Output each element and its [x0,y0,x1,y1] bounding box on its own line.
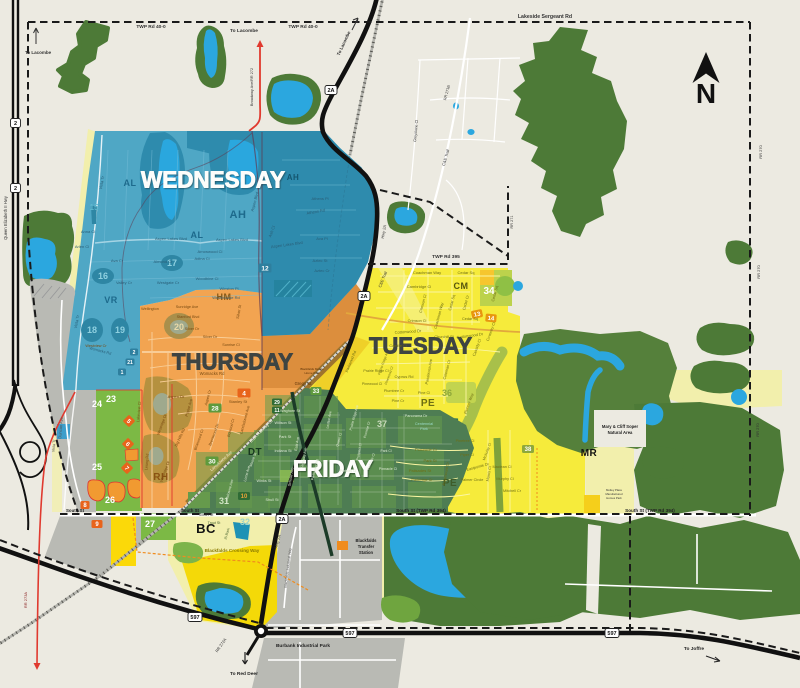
svg-text:Valley Cr: Valley Cr [116,280,133,285]
svg-text:RR 271: RR 271 [510,216,514,229]
svg-text:2: 2 [14,121,17,127]
svg-text:16: 16 [98,271,108,281]
svg-text:23: 23 [106,394,116,404]
svg-text:Portway Cl: Portway Cl [340,469,357,473]
svg-text:Trout St: Trout St [208,521,221,525]
svg-text:Westgate Cr: Westgate Cr [157,280,180,285]
svg-text:10: 10 [241,494,248,500]
svg-text:1: 1 [121,370,124,376]
svg-text:Sunrise Cl: Sunrise Cl [222,343,240,347]
svg-text:Waghorn St: Waghorn St [280,409,301,413]
svg-text:Athens Pl: Athens Pl [311,196,328,201]
svg-text:Ava Cr: Ava Cr [111,258,124,263]
svg-text:AL: AL [191,230,204,240]
svg-text:Arlen Cl: Arlen Cl [75,244,89,249]
svg-text:To Red Deer: To Red Deer [230,671,258,677]
svg-text:Mary & Cliff Soper: Mary & Cliff Soper [602,424,639,429]
svg-text:To Joffre: To Joffre [684,646,704,652]
svg-text:Aspen Lakes Blvd: Aspen Lakes Blvd [216,237,248,242]
svg-text:Blackfalds: Blackfalds [356,538,378,543]
svg-text:Shull St: Shull St [265,498,279,502]
svg-text:32: 32 [240,517,250,527]
svg-text:Pinetree Cl: Pinetree Cl [456,439,475,443]
svg-text:Winston Pl: Winston Pl [219,286,238,291]
svg-text:15: 15 [90,203,99,212]
svg-text:Wellington: Wellington [141,307,159,311]
svg-text:Aztec St: Aztec St [313,258,329,263]
svg-text:Piper Cl: Piper Cl [460,453,474,457]
svg-text:2A: 2A [278,517,285,523]
svg-text:Womacks Rd: Womacks Rd [200,371,225,376]
svg-text:Home Park: Home Park [304,371,320,375]
svg-text:Maclean Cl: Maclean Cl [493,465,512,469]
svg-text:Woodbine Cl: Woodbine Cl [196,276,219,281]
svg-text:Gregg St: Gregg St [295,381,313,386]
svg-text:24: 24 [92,399,102,409]
svg-text:12: 12 [261,265,269,272]
svg-text:VR: VR [104,295,118,305]
svg-text:To Lacombe: To Lacombe [230,28,258,34]
svg-text:Broadway Ave/RR 272: Broadway Ave/RR 272 [250,68,254,106]
svg-text:Coachman Way: Coachman Way [413,270,441,275]
svg-text:Mitchell Cr: Mitchell Cr [503,489,522,493]
svg-text:South St: South St [181,508,200,513]
svg-text:THURSDAY: THURSDAY [172,349,293,375]
svg-text:Pinnacle Cl: Pinnacle Cl [379,467,397,471]
svg-text:33: 33 [313,389,320,395]
svg-text:Park St: Park St [423,458,437,463]
svg-text:Cedar Sq: Cedar Sq [462,317,478,321]
svg-text:Adina Cl: Adina Cl [194,256,209,261]
svg-text:Parkridge Cr: Parkridge Cr [411,478,433,482]
svg-text:N: N [696,78,716,109]
svg-text:Pine Cl: Pine Cl [418,391,430,395]
svg-text:Ava Pl: Ava Pl [316,236,328,241]
svg-text:28: 28 [211,405,219,412]
svg-text:Stanley St: Stanley St [229,399,248,404]
svg-text:South St (TWP Rd 394): South St (TWP Rd 394) [396,508,446,513]
svg-text:Pinewood Cl: Pinewood Cl [362,382,382,386]
svg-text:36: 36 [442,388,452,398]
svg-text:RR 270: RR 270 [755,422,760,436]
svg-text:CM: CM [454,281,469,291]
svg-text:37: 37 [377,419,387,429]
svg-text:14: 14 [487,316,495,323]
svg-text:AH: AH [230,209,247,221]
svg-text:South St: South St [66,508,85,513]
svg-text:Homes Park: Homes Park [606,496,622,500]
svg-text:21: 21 [127,360,133,366]
svg-text:19: 19 [115,325,125,335]
svg-text:MR: MR [581,448,598,459]
svg-text:Stanford Blvd: Stanford Blvd [177,315,200,319]
svg-text:Willson St: Willson St [275,421,293,425]
svg-text:2A: 2A [327,88,334,94]
svg-text:11: 11 [274,408,280,414]
svg-text:Panorama Dr: Panorama Dr [405,414,428,418]
svg-text:Palisades St: Palisades St [409,468,432,473]
svg-text:29: 29 [274,400,280,406]
svg-text:Arrowwood Cl: Arrowwood Cl [198,249,223,254]
svg-text:597: 597 [345,631,354,637]
svg-text:Pondside Cr: Pondside Cr [415,447,438,452]
svg-text:2: 2 [14,186,17,192]
svg-text:RR 270: RR 270 [756,264,761,278]
svg-text:Cambridge Cl: Cambridge Cl [407,284,432,289]
svg-text:Park Cl: Park Cl [380,449,391,453]
svg-text:Westview Cr: Westview Cr [85,344,107,348]
svg-text:Cedar Sq: Cedar Sq [458,270,475,275]
svg-text:Westbrooke Rd: Westbrooke Rd [212,295,240,300]
svg-text:RR 273A: RR 273A [23,592,28,609]
svg-text:RR 270: RR 270 [758,144,763,158]
svg-text:4: 4 [242,390,246,397]
svg-text:Silver Dr: Silver Dr [185,327,200,331]
svg-text:38: 38 [525,447,532,453]
svg-text:Queen Elizabeth II Hwy: Queen Elizabeth II Hwy [3,195,8,240]
svg-text:AH: AH [287,173,300,182]
svg-text:Natural Area: Natural Area [608,430,633,435]
svg-text:25: 25 [92,462,102,472]
svg-text:2A: 2A [360,294,367,300]
svg-text:Aztec Cr: Aztec Cr [314,268,330,273]
svg-text:South St: South St [199,513,215,517]
svg-text:TWP Rd 395: TWP Rd 395 [432,254,460,260]
svg-text:PE: PE [421,398,435,409]
svg-text:Silver Dr: Silver Dr [203,335,218,339]
svg-text:Prairie Ridge Cl: Prairie Ridge Cl [363,369,388,373]
svg-text:To Lacombe: To Lacombe [25,50,52,55]
svg-text:26: 26 [105,495,115,505]
svg-text:18: 18 [87,325,97,335]
svg-text:Aspen Lakes Blvd: Aspen Lakes Blvd [155,236,187,241]
svg-text:Cyprus Rd: Cyprus Rd [395,374,414,379]
svg-text:Almond Cr: Almond Cr [154,259,174,264]
svg-text:Burbank Industrial Park: Burbank Industrial Park [276,643,330,649]
svg-text:South St (TWP Rd 394): South St (TWP Rd 394) [625,508,675,513]
svg-text:Lakeside Sergeant Rd: Lakeside Sergeant Rd [518,14,572,20]
svg-text:Winks St: Winks St [257,479,273,483]
svg-text:WEDNESDAY: WEDNESDAY [141,167,285,193]
svg-text:Blackfalds Crossing Way: Blackfalds Crossing Way [205,548,260,553]
svg-text:Park St: Park St [279,435,292,439]
svg-text:Murphy Cl: Murphy Cl [496,477,513,481]
svg-text:Centennial: Centennial [415,422,433,426]
svg-text:Palmer Circle: Palmer Circle [461,478,484,482]
svg-text:597: 597 [607,631,616,637]
svg-text:2: 2 [133,350,136,356]
svg-text:AL: AL [124,178,137,188]
svg-text:Crimson Cl: Crimson Cl [408,319,427,323]
svg-text:Anna Cl: Anna Cl [81,229,95,234]
svg-text:597: 597 [190,615,199,621]
svg-text:Plumtree Cr: Plumtree Cr [384,389,405,393]
svg-text:27: 27 [145,519,155,529]
svg-text:Sunridge Ave: Sunridge Ave [176,305,199,309]
svg-text:Pine Cr: Pine Cr [392,399,405,403]
svg-text:20: 20 [174,322,184,332]
svg-text:Camille Cl: Camille Cl [389,344,406,348]
svg-text:TWP Rd 40-0: TWP Rd 40-0 [288,24,318,30]
svg-text:TWP Rd 40-0: TWP Rd 40-0 [136,24,166,30]
svg-text:Park: Park [420,427,428,431]
svg-text:Transfer: Transfer [358,544,375,549]
svg-text:Indiana St: Indiana St [274,449,292,453]
svg-text:Aspen Dr: Aspen Dr [168,394,185,399]
svg-text:Station: Station [359,550,374,555]
svg-text:Churchill Pl: Churchill Pl [434,335,453,339]
